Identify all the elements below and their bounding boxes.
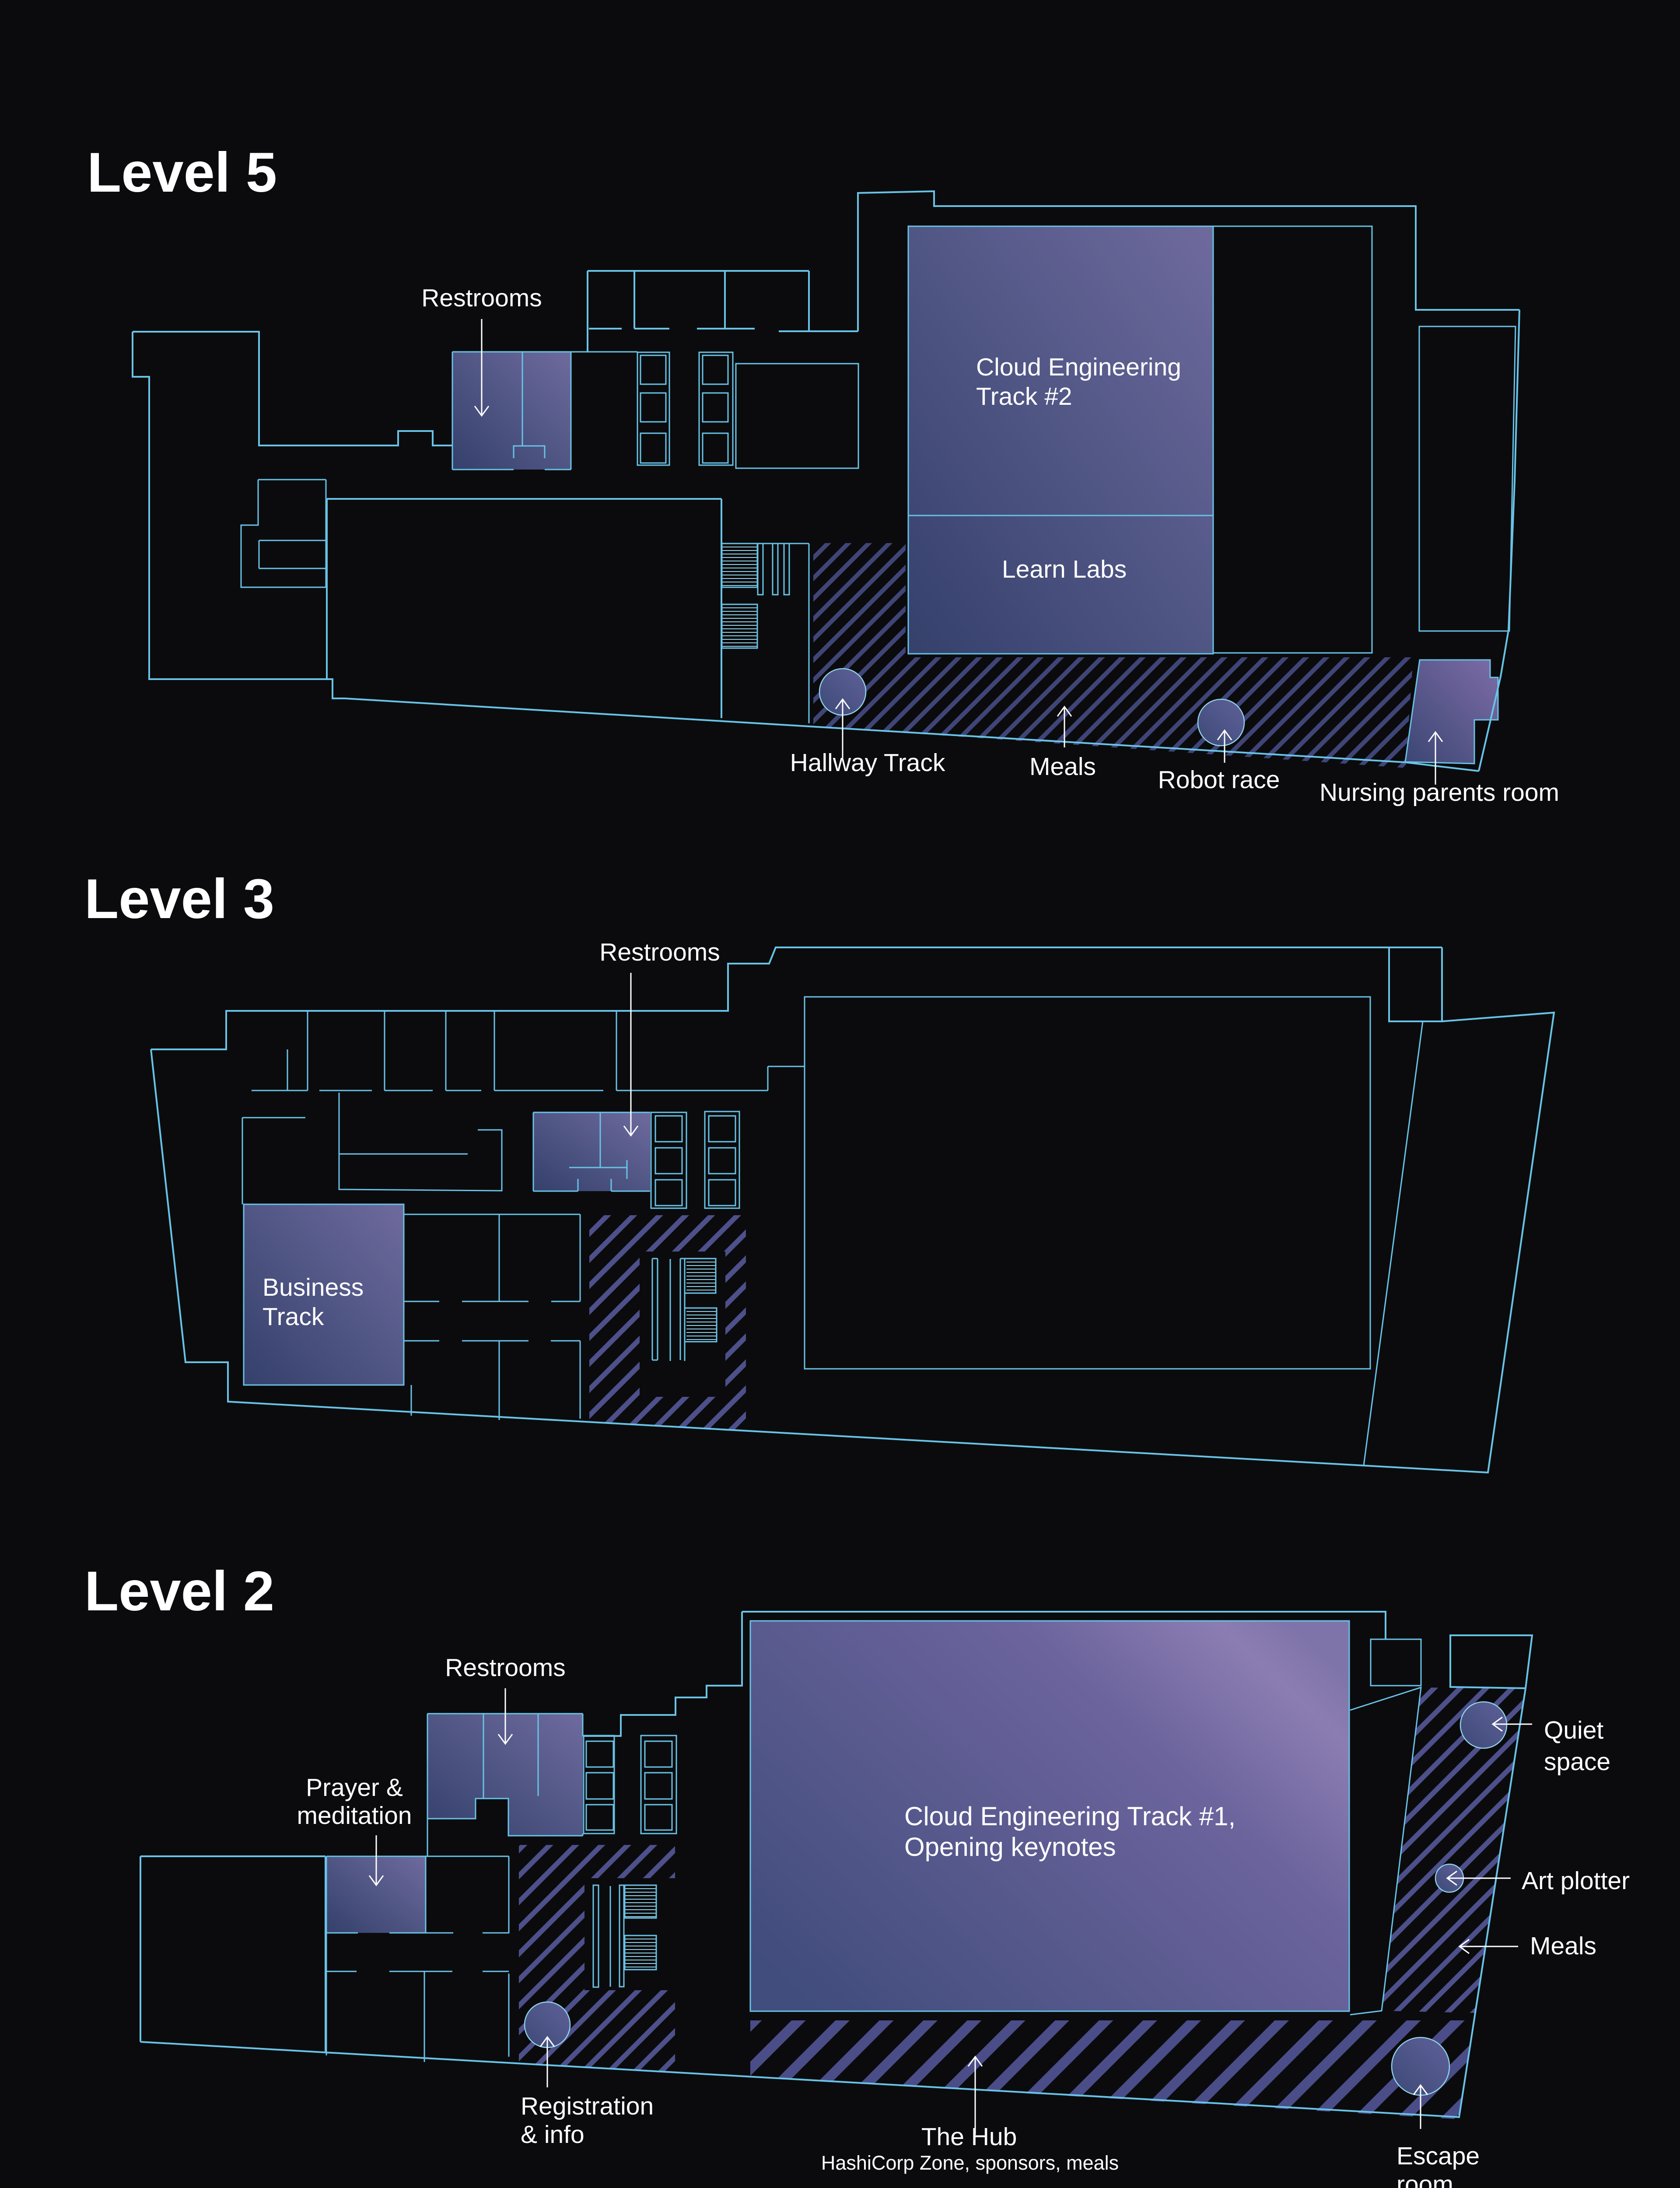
svg-text:HashiCorp Zone, sponsors, meal: HashiCorp Zone, sponsors, meals <box>821 2152 1119 2174</box>
svg-text:Art plotter: Art plotter <box>1522 1867 1630 1895</box>
svg-text:Track: Track <box>262 1303 324 1331</box>
svg-text:Cloud Engineering: Cloud Engineering <box>976 353 1181 381</box>
svg-text:Quiet: Quiet <box>1544 1716 1603 1744</box>
svg-text:Cloud Engineering Track #1,: Cloud Engineering Track #1, <box>904 1802 1235 1831</box>
svg-text:Level 2: Level 2 <box>84 1560 274 1623</box>
svg-text:Hallway Track: Hallway Track <box>790 749 945 777</box>
svg-text:Meals: Meals <box>1530 1932 1596 1960</box>
svg-text:Robot race: Robot race <box>1158 766 1280 794</box>
svg-text:Registration: Registration <box>521 2092 654 2120</box>
svg-text:Business: Business <box>262 1273 364 1301</box>
svg-text:Level 5: Level 5 <box>87 141 277 204</box>
svg-text:Opening keynotes: Opening keynotes <box>904 1832 1116 1862</box>
svg-text:Restrooms: Restrooms <box>599 938 720 966</box>
svg-text:Restrooms: Restrooms <box>445 1654 566 1682</box>
svg-text:Nursing parents room: Nursing parents room <box>1319 778 1559 806</box>
svg-text:Track #2: Track #2 <box>976 382 1072 410</box>
svg-text:& info: & info <box>521 2121 584 2149</box>
svg-text:Restrooms: Restrooms <box>421 284 542 312</box>
svg-text:The Hub: The Hub <box>921 2123 1017 2151</box>
svg-text:Escape: Escape <box>1396 2142 1480 2170</box>
svg-text:Level 3: Level 3 <box>84 868 274 930</box>
svg-text:Meals: Meals <box>1029 753 1096 781</box>
svg-text:meditation: meditation <box>297 1802 412 1830</box>
svg-text:Prayer &: Prayer & <box>306 1774 403 1802</box>
svg-text:Learn Labs: Learn Labs <box>1002 555 1127 583</box>
svg-text:room: room <box>1396 2170 1453 2188</box>
svg-text:space: space <box>1544 1748 1610 1776</box>
